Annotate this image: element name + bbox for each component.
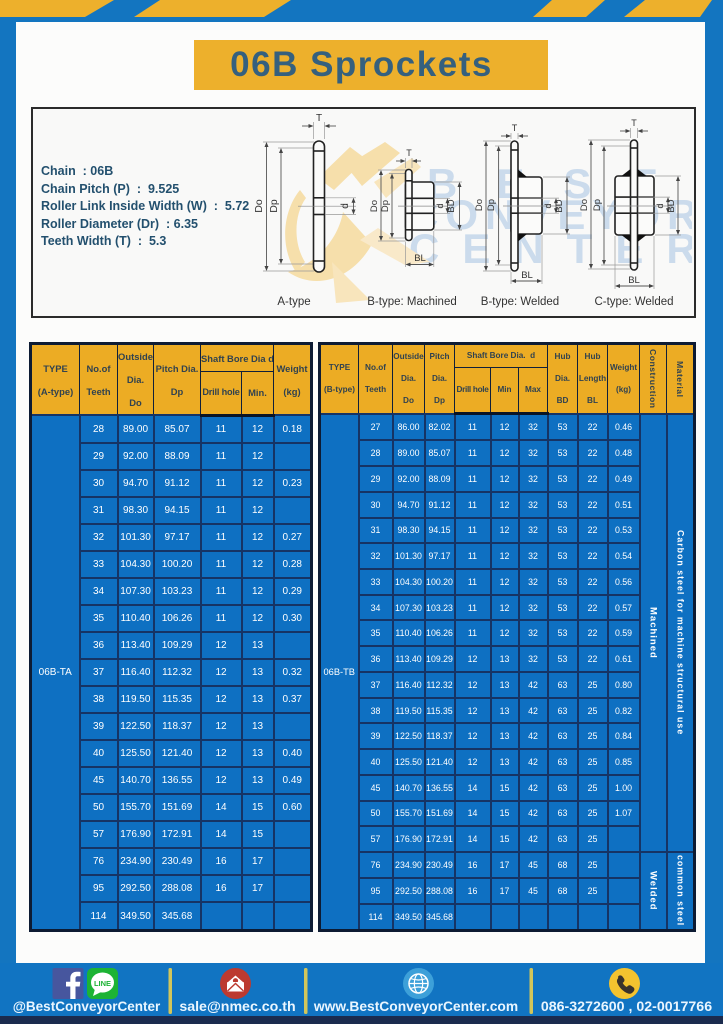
svg-text:A-type: A-type	[277, 296, 310, 308]
svg-text:Do: Do	[369, 200, 380, 212]
svg-text:T: T	[512, 123, 518, 133]
svg-text:B-type: Machined: B-type: Machined	[367, 296, 457, 308]
svg-text:Dp: Dp	[592, 199, 603, 211]
svg-text:d: d	[655, 203, 665, 208]
svg-text:T: T	[316, 113, 322, 124]
svg-text:Dp: Dp	[380, 200, 391, 212]
svg-text:Do: Do	[579, 199, 590, 211]
svg-text:LINE: LINE	[94, 979, 111, 988]
svg-text:BL: BL	[414, 253, 426, 264]
svg-text:d: d	[543, 203, 553, 208]
svg-text:BD: BD	[446, 199, 457, 212]
svg-text:B-type: Welded: B-type: Welded	[481, 296, 559, 308]
svg-text:Do: Do	[474, 199, 485, 211]
svg-text:d: d	[340, 203, 351, 209]
svg-text:BD: BD	[666, 199, 677, 212]
svg-text:Dp: Dp	[486, 199, 497, 211]
svg-text:BL: BL	[521, 270, 533, 281]
svg-text:BD: BD	[554, 199, 565, 212]
svg-text:BL: BL	[628, 275, 640, 286]
svg-text:T: T	[631, 118, 637, 128]
svg-text:d: d	[435, 203, 445, 208]
svg-text:T: T	[406, 148, 412, 158]
svg-text:C-type: Welded: C-type: Welded	[594, 296, 673, 308]
